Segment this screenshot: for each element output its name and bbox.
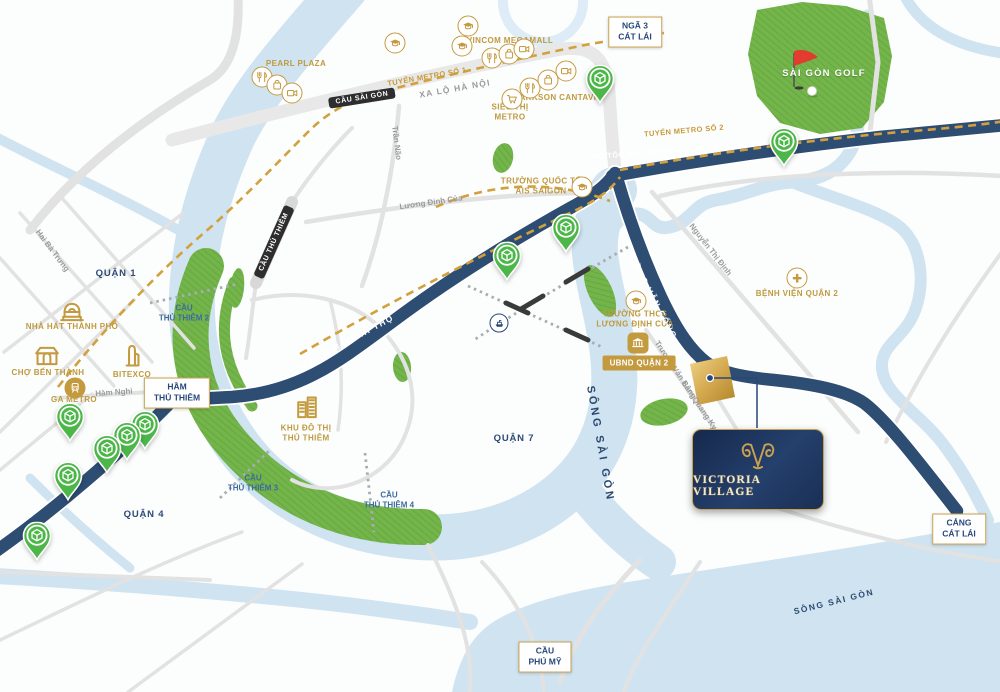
location-map: PEARL PLAZAVINCOM MEGAMALLPARKSON CANTAV… xyxy=(0,0,1000,692)
project-card: VICTORIA VILLAGE xyxy=(692,429,824,510)
bridge-thu-thiem-4-label-line-1: THỦ THIÊM 4 xyxy=(364,501,414,511)
street-hai-ba-trung: Hai Bà Trưng xyxy=(33,228,72,274)
label-benh-vien-quan-2: BỆNH VIỆN QUẬN 2 xyxy=(756,289,838,299)
callout-ham-thu-thiem: HẦMTHỦ THIÊM xyxy=(144,378,210,409)
shopping-icon xyxy=(267,75,288,96)
label-quan-4: QUẬN 4 xyxy=(124,509,165,521)
callout-cau-phu-my-line-1: PHÚ MỸ xyxy=(528,657,561,668)
callout-cang-cat-lai-line-1: CÁT LÁI xyxy=(942,529,976,540)
opera-house-icon xyxy=(59,299,86,326)
amenity-pin xyxy=(53,462,83,507)
callout-ham-thu-thiem-line-0: HẦM xyxy=(154,382,200,393)
label-khu-do-thi-thu-thiem-line-1: THỦ THIÊM xyxy=(281,434,332,444)
school-icon xyxy=(452,36,473,57)
road-dong-van-cong: ĐỒNG VĂN CỐNG xyxy=(627,255,680,341)
label-ais-saigon-line-1: AIS SAIGON xyxy=(501,187,581,197)
callout-cang-cat-lai-line-0: CẢNG xyxy=(942,518,976,529)
cinema-icon xyxy=(514,39,535,60)
amenity-pin xyxy=(55,403,85,448)
label-thcs-luong-dinh-cua: TRƯỜNG THCSLƯƠNG ĐỊNH CỦA xyxy=(596,310,673,331)
label-quan-1: QUẬN 1 xyxy=(96,268,137,280)
label-khu-do-thi-thu-thiem: KHU ĐÔ THỊTHỦ THIÊM xyxy=(281,424,332,445)
project-monogram-icon xyxy=(735,441,781,471)
bridge-thu-thiem-3-label: CẦUTHỦ THIÊM 3 xyxy=(228,474,278,495)
callout-cau-phu-my: CẦUPHÚ MỸ xyxy=(518,642,571,673)
tag-cau-sai-gon: CẦU SÀI GÒN xyxy=(328,87,396,108)
shopping-icon xyxy=(538,70,559,91)
bitexco-tower-icon xyxy=(119,343,146,370)
label-sieu-thi-metro: SIÊU THỊMETRO xyxy=(492,103,529,124)
bridge-thu-thiem-2-label-line-1: THỦ THIÊM 2 xyxy=(159,314,209,324)
school-icon xyxy=(385,33,406,54)
metro-line-2-label: TUYẾN METRO SỐ 2 xyxy=(644,123,725,140)
metro-line-1-label: TUYẾN METRO SỐ 1 xyxy=(387,65,468,89)
cinema-icon xyxy=(556,61,577,82)
callout-cang-cat-lai: CẢNGCÁT LÁI xyxy=(932,514,986,545)
amenity-pin xyxy=(769,128,799,173)
ferry-icon xyxy=(490,314,509,333)
label-pearl-plaza: PEARL PLAZA xyxy=(266,59,326,69)
label-cho-ben-thanh: CHỢ BẾN THÀNH xyxy=(12,368,85,378)
badge-ubnd-quan-2: UBND QUẬN 2 xyxy=(603,356,676,371)
supermarket-cart-icon xyxy=(502,89,523,110)
shopping-icon xyxy=(499,44,520,65)
label-nha-hat-thanh-pho: NHÀ HÁT THÀNH PHỐ xyxy=(26,322,119,332)
label-ais-saigon: TRƯỜNG QUỐC TẾAIS SAIGON xyxy=(501,177,581,198)
bridge-thu-thiem-2-label-line-0: CẦU xyxy=(159,304,209,314)
bridge-thu-thiem-4-label: CẦUTHỦ THIÊM 4 xyxy=(364,491,414,512)
river-song-sai-gon-bottom: SÔNG SÀI GÒN xyxy=(793,587,876,618)
map-overlay: PEARL PLAZAVINCOM MEGAMALLPARKSON CANTAV… xyxy=(0,0,1000,692)
amenity-pin xyxy=(551,214,581,259)
tag-cau-thu-thiem: CẦU THỦ THIÊM xyxy=(253,205,294,280)
cinema-icon xyxy=(282,83,303,104)
amenity-pin xyxy=(492,242,522,287)
project-name: VICTORIA VILLAGE xyxy=(693,474,823,498)
street-tran-nao: Trần Não xyxy=(389,125,403,160)
label-vincom-megamall: VINCOM MEGAMALL xyxy=(467,36,553,46)
callout-cau-phu-my-line-0: CẦU xyxy=(528,646,561,657)
metro-train-icon xyxy=(65,378,86,399)
street-lam-quang-ky: Lâm Quang Ky xyxy=(679,380,719,433)
restaurant-icon xyxy=(252,67,273,88)
road-cao-toc: CAO TỐC HỒ CHÍ MINH - LONG THÀNH - DẦU G… xyxy=(586,135,792,163)
market-icon xyxy=(34,343,61,370)
restaurant-icon xyxy=(520,78,541,99)
urban-area-icon xyxy=(294,394,321,421)
label-quan-7: QUẬN 7 xyxy=(494,433,535,445)
bridge-thu-thiem-3-label-line-1: THỦ THIÊM 3 xyxy=(228,484,278,494)
street-luong-dinh-cua: Lương Định Của xyxy=(399,193,463,212)
school-icon xyxy=(458,16,479,37)
street-ham-nghi: Hàm Nghi xyxy=(95,387,133,400)
amenity-pin xyxy=(585,65,615,110)
river-song-sai-gon-mid: SÔNG SÀI GÒN xyxy=(583,385,618,504)
label-ais-saigon-line-0: TRƯỜNG QUỐC TẾ xyxy=(501,177,581,187)
bridge-thu-thiem-2-label: CẦUTHỦ THIÊM 2 xyxy=(159,304,209,325)
label-thcs-luong-dinh-cua-line-1: LƯƠNG ĐỊNH CỦA xyxy=(596,320,673,330)
callout-nga-3-cat-lai-line-1: CÁT LÁI xyxy=(618,32,652,43)
callout-nga-3-cat-lai: NGÃ 3CÁT LÁI xyxy=(608,17,662,48)
restaurant-icon xyxy=(482,48,503,69)
label-sieu-thi-metro-line-0: SIÊU THỊ xyxy=(492,103,529,113)
bridge-thu-thiem-3-label-line-0: CẦU xyxy=(228,474,278,484)
amenity-pin xyxy=(22,522,52,567)
callout-nga-3-cat-lai-line-0: NGÃ 3 xyxy=(618,21,652,32)
label-thcs-luong-dinh-cua-line-0: TRƯỜNG THCS xyxy=(596,310,673,320)
amenity-pin xyxy=(92,435,122,480)
bridge-thu-thiem-4-label-line-0: CẦU xyxy=(364,491,414,501)
road-xa-lo-ha-noi: XA LỘ HÀ NỘI xyxy=(419,77,492,100)
label-sieu-thi-metro-line-1: METRO xyxy=(492,113,529,123)
label-sai-gon-golf: SÀI GÒN GOLF xyxy=(782,68,866,80)
hospital-cross-icon xyxy=(787,268,808,289)
government-bank-icon xyxy=(628,333,649,354)
school-icon xyxy=(572,177,593,198)
label-khu-do-thi-thu-thiem-line-0: KHU ĐÔ THỊ xyxy=(281,424,332,434)
school-icon xyxy=(626,291,647,312)
road-mai-chi-tho: ĐẠI LỘ MAI CHÍ THỌ xyxy=(294,312,396,373)
callout-ham-thu-thiem-line-1: THỦ THIÊM xyxy=(154,393,200,404)
street-nguyen-thi-dinh: Nguyễn Thị Định xyxy=(686,222,733,278)
